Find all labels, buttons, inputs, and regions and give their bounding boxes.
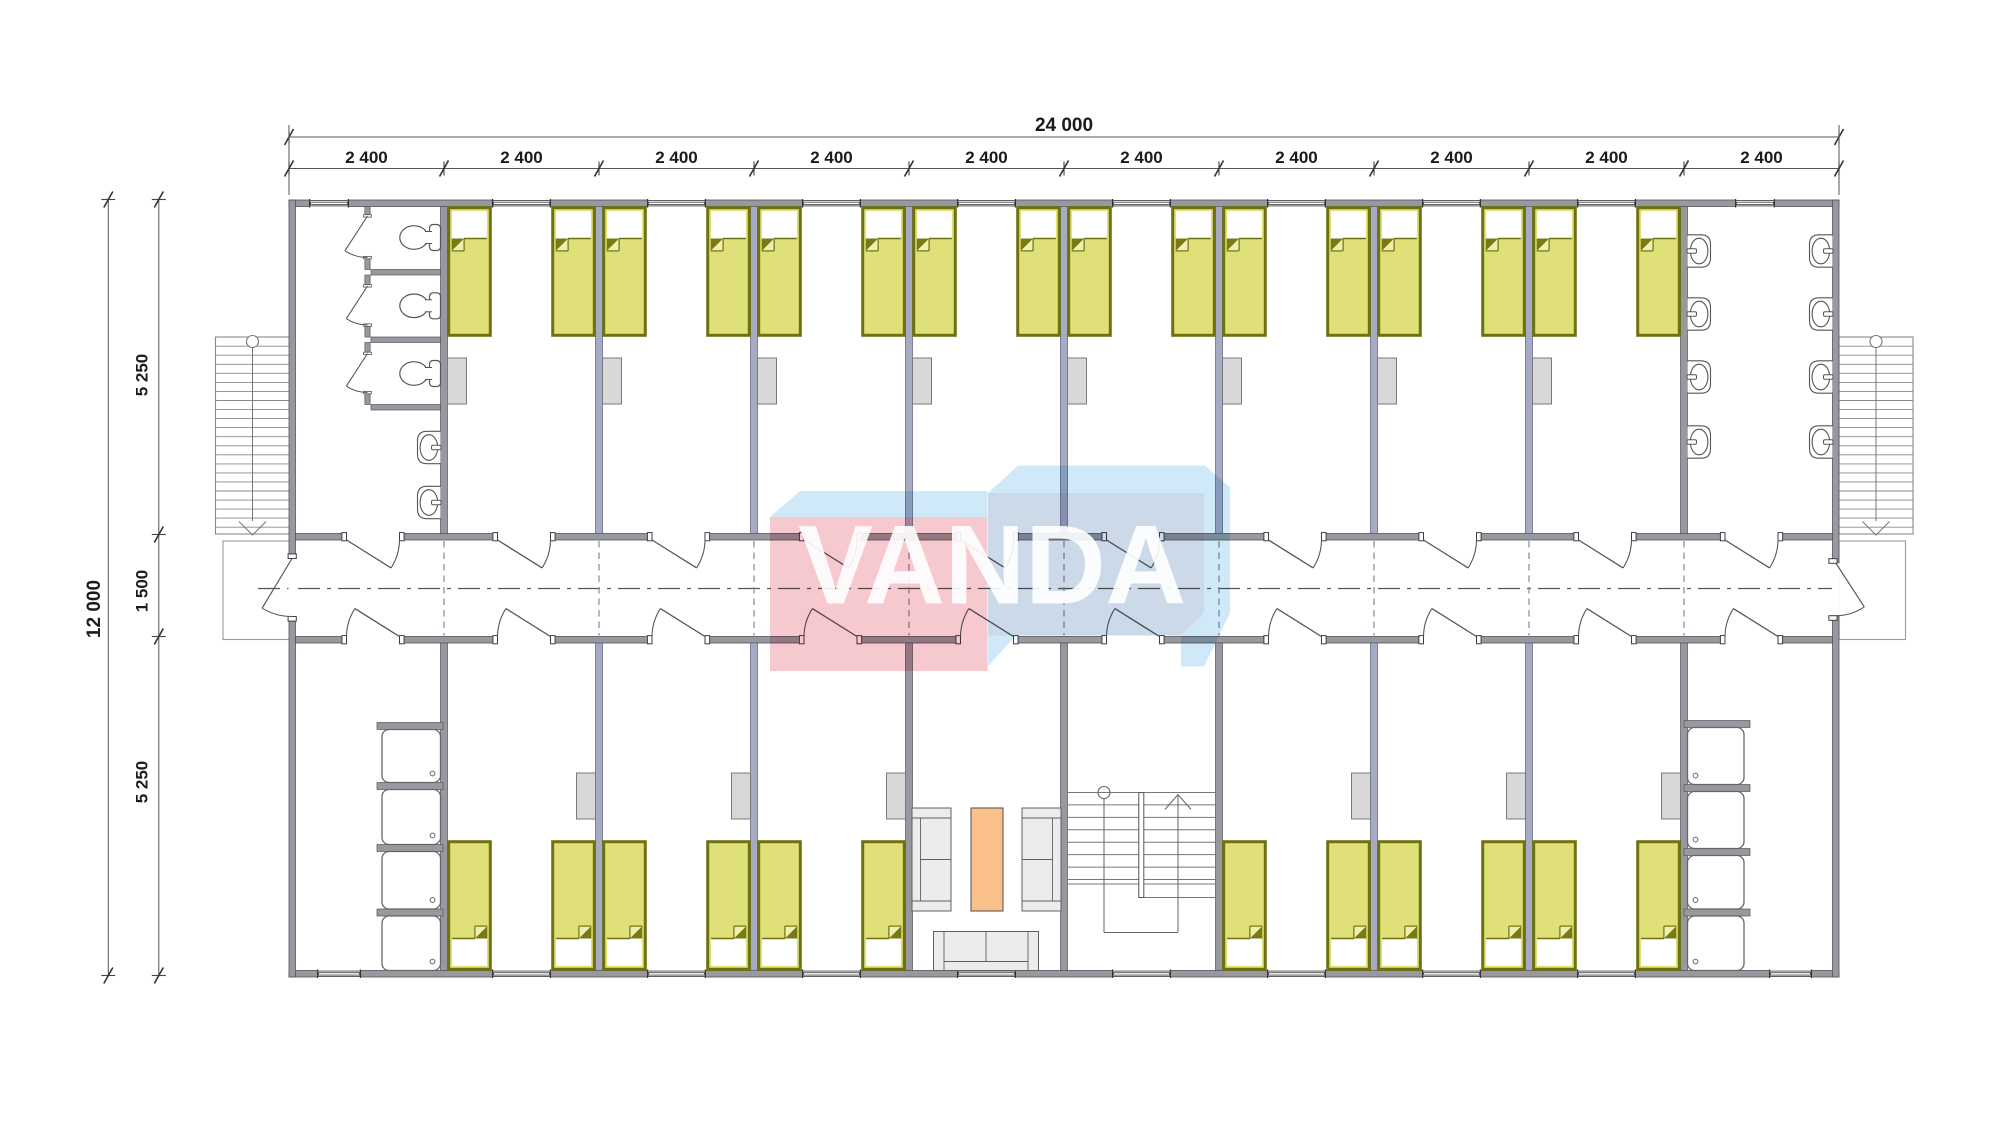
svg-text:5 250: 5 250 bbox=[133, 761, 152, 804]
svg-text:2 400: 2 400 bbox=[1275, 148, 1318, 167]
svg-text:2 400: 2 400 bbox=[965, 148, 1008, 167]
svg-text:2 400: 2 400 bbox=[1585, 148, 1628, 167]
svg-text:2 400: 2 400 bbox=[1120, 148, 1163, 167]
svg-text:2 400: 2 400 bbox=[345, 148, 388, 167]
svg-text:12 000: 12 000 bbox=[84, 580, 105, 638]
svg-text:2 400: 2 400 bbox=[655, 148, 698, 167]
svg-text:24 000: 24 000 bbox=[1035, 115, 1093, 136]
svg-text:2 400: 2 400 bbox=[500, 148, 543, 167]
svg-text:2 400: 2 400 bbox=[810, 148, 853, 167]
svg-text:VANDA: VANDA bbox=[798, 503, 1185, 628]
svg-text:2 400: 2 400 bbox=[1430, 148, 1473, 167]
svg-text:2 400: 2 400 bbox=[1740, 148, 1783, 167]
svg-text:5 250: 5 250 bbox=[133, 354, 152, 397]
svg-text:1 500: 1 500 bbox=[133, 570, 152, 613]
